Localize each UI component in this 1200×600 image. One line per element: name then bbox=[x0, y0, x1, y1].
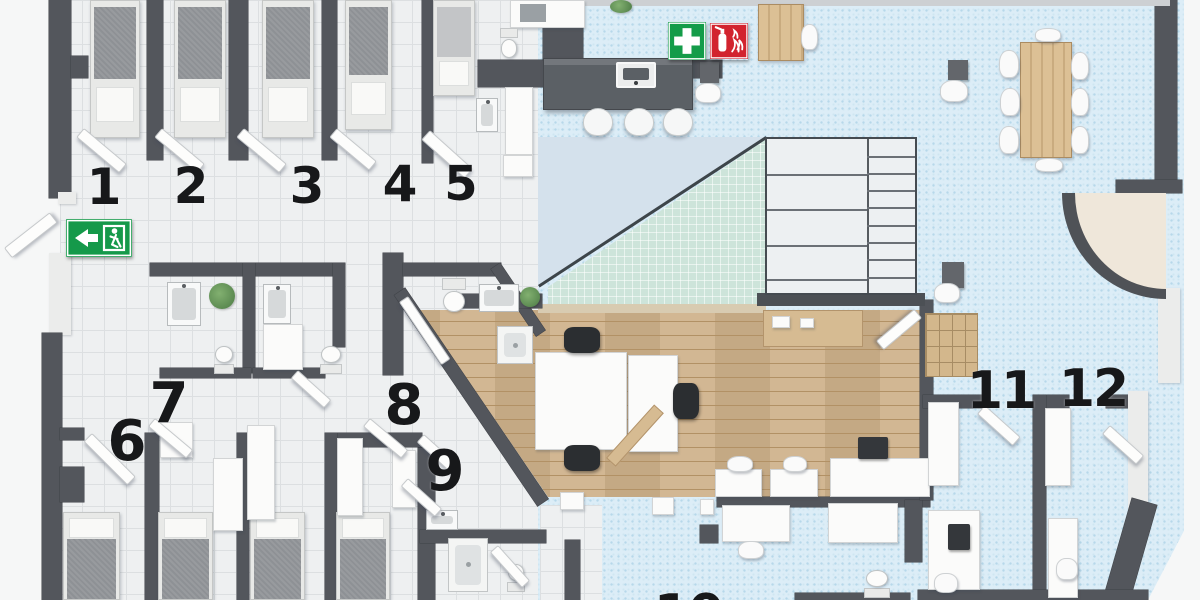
part bbox=[767, 245, 867, 247]
bed bbox=[174, 0, 226, 138]
bench bbox=[503, 155, 533, 177]
shower-tray bbox=[448, 538, 488, 592]
part bbox=[351, 82, 386, 115]
side-table bbox=[715, 469, 762, 497]
part bbox=[268, 87, 308, 122]
part bbox=[439, 61, 469, 86]
bottom-wall bbox=[795, 593, 910, 600]
dining-chair bbox=[1071, 52, 1089, 80]
room-number-label: 7 bbox=[150, 376, 187, 432]
bathroom-wall bbox=[333, 263, 345, 347]
chair bbox=[783, 456, 807, 472]
part bbox=[867, 242, 915, 244]
bar-stool bbox=[663, 108, 693, 136]
bed bbox=[433, 0, 475, 96]
door-jamb bbox=[560, 492, 584, 510]
dining-chair bbox=[999, 50, 1019, 78]
bed bbox=[90, 0, 140, 138]
bathroom-counter bbox=[505, 87, 533, 155]
part bbox=[486, 100, 490, 104]
bed bbox=[158, 512, 213, 600]
part bbox=[767, 174, 867, 176]
part bbox=[67, 539, 116, 599]
room-number-label: 9 bbox=[426, 444, 463, 500]
chair bbox=[738, 541, 764, 559]
part bbox=[266, 7, 310, 79]
part bbox=[867, 156, 915, 158]
chair bbox=[727, 456, 753, 472]
dining-chair bbox=[1071, 126, 1089, 154]
shower-tray bbox=[497, 326, 533, 364]
part bbox=[867, 173, 915, 175]
exterior-wall-left-bottom bbox=[42, 333, 62, 600]
office-chair bbox=[673, 383, 699, 419]
bathroom-wall bbox=[243, 263, 255, 373]
part bbox=[442, 278, 466, 290]
part bbox=[867, 277, 915, 279]
wall-stub bbox=[905, 500, 922, 562]
sideboard-item bbox=[800, 318, 814, 328]
wall-post bbox=[700, 525, 718, 543]
wardrobe bbox=[1045, 408, 1071, 486]
wood-threshold bbox=[538, 304, 766, 313]
part bbox=[215, 346, 233, 363]
part bbox=[172, 288, 196, 320]
dining-chair bbox=[1035, 28, 1061, 42]
desk bbox=[722, 505, 790, 542]
part bbox=[320, 364, 342, 374]
room-number-label: 10 bbox=[654, 588, 722, 600]
kitchen-wall bbox=[543, 26, 583, 60]
office-chair bbox=[564, 445, 600, 471]
part bbox=[500, 28, 518, 38]
part bbox=[342, 518, 384, 538]
door-jamb bbox=[700, 499, 714, 515]
part bbox=[69, 518, 114, 538]
computer-monitor bbox=[948, 524, 970, 550]
room-number-label: 2 bbox=[174, 161, 207, 211]
part bbox=[162, 539, 209, 599]
wardrobe bbox=[392, 450, 416, 508]
kitchen-island bbox=[543, 58, 693, 110]
part bbox=[268, 290, 286, 318]
room-number-label: 12 bbox=[1059, 363, 1127, 415]
wardrobe bbox=[213, 458, 243, 531]
part bbox=[867, 259, 915, 261]
corridor-wall bbox=[150, 263, 253, 276]
exterior-wall-left-top bbox=[49, 0, 71, 198]
fire-extinguisher-sign bbox=[710, 22, 748, 60]
bed bbox=[250, 512, 305, 600]
part bbox=[256, 518, 299, 538]
exit-door bbox=[4, 212, 58, 258]
chair bbox=[934, 283, 960, 303]
floor-plan: 123456789101112 bbox=[0, 0, 1200, 600]
toilet bbox=[212, 346, 236, 374]
office-desk bbox=[535, 352, 627, 450]
part bbox=[867, 139, 869, 293]
toilet bbox=[318, 346, 344, 374]
dining-chair bbox=[1035, 158, 1063, 172]
part bbox=[634, 81, 638, 85]
wood-staircase bbox=[592, 505, 672, 577]
part bbox=[441, 512, 445, 516]
bed bbox=[345, 0, 392, 130]
part bbox=[864, 588, 889, 598]
part bbox=[254, 539, 301, 599]
bathroom-counter bbox=[263, 324, 303, 370]
wall-nub bbox=[60, 467, 84, 502]
dining-chair bbox=[999, 126, 1019, 154]
room-number-label: 5 bbox=[444, 160, 475, 208]
dining-chair bbox=[1071, 88, 1089, 116]
bathroom-sink bbox=[167, 282, 201, 326]
part bbox=[866, 570, 889, 587]
curved-alcove-wall bbox=[1062, 193, 1166, 299]
part bbox=[321, 346, 341, 363]
top-wall-band bbox=[545, 0, 1170, 6]
corridor-wall bbox=[253, 263, 343, 276]
bathroom-sink bbox=[476, 98, 498, 132]
room-number-label: 11 bbox=[967, 365, 1035, 417]
plant bbox=[520, 287, 540, 307]
door-jamb bbox=[652, 497, 674, 515]
bedroom-wall bbox=[145, 433, 159, 600]
wall-light bbox=[1158, 288, 1180, 383]
bar-stool bbox=[583, 108, 613, 136]
bed bbox=[336, 512, 390, 600]
office-chair bbox=[564, 327, 600, 353]
part bbox=[180, 87, 220, 122]
kitchen-wall bbox=[478, 60, 544, 87]
reception-desk bbox=[830, 458, 930, 497]
chair bbox=[801, 24, 818, 50]
side-table bbox=[770, 469, 818, 497]
emergency-exit-running-man-sign bbox=[66, 219, 132, 257]
corridor-wall bbox=[403, 263, 501, 276]
wall-light bbox=[49, 253, 71, 335]
bathroom-sink bbox=[263, 284, 291, 324]
chair bbox=[695, 83, 721, 103]
part bbox=[164, 518, 207, 538]
shower-room-wall bbox=[565, 540, 580, 600]
chair bbox=[940, 80, 968, 102]
part bbox=[867, 190, 915, 192]
part bbox=[94, 7, 136, 79]
bar-stool bbox=[624, 108, 654, 136]
door-frame bbox=[58, 192, 76, 204]
room-number-label: 8 bbox=[385, 378, 422, 434]
main-staircase bbox=[765, 137, 917, 295]
part bbox=[437, 7, 471, 57]
room-number-label: 1 bbox=[87, 162, 120, 212]
bathroom-sink bbox=[479, 284, 519, 312]
part bbox=[96, 87, 134, 122]
cube-table bbox=[948, 60, 968, 80]
cube-table bbox=[700, 62, 719, 83]
part bbox=[867, 225, 915, 227]
plant bbox=[610, 0, 632, 13]
plant bbox=[209, 283, 235, 309]
dining-chair bbox=[1000, 88, 1020, 116]
room-number-label: 6 bbox=[108, 414, 145, 470]
part bbox=[1075, 193, 1166, 289]
cooktop bbox=[520, 4, 546, 22]
first-aid-cross-sign bbox=[668, 22, 706, 60]
part bbox=[214, 364, 234, 374]
chair bbox=[934, 573, 958, 593]
part bbox=[767, 279, 867, 281]
part bbox=[623, 68, 649, 80]
sideboard-item bbox=[772, 316, 790, 328]
part bbox=[867, 207, 915, 209]
toilet bbox=[862, 570, 892, 598]
bathroom-wall-thick bbox=[383, 253, 403, 375]
wall-nub bbox=[60, 428, 84, 440]
part bbox=[481, 104, 493, 126]
wall-nub bbox=[71, 56, 88, 78]
room-number-label: 4 bbox=[383, 159, 416, 209]
part bbox=[767, 209, 867, 211]
computer-monitor bbox=[858, 437, 888, 459]
part bbox=[501, 39, 518, 58]
chair bbox=[1056, 558, 1078, 580]
part bbox=[276, 286, 280, 290]
bed bbox=[63, 512, 120, 600]
part bbox=[340, 539, 386, 599]
part bbox=[349, 7, 388, 75]
wardrobe bbox=[247, 425, 275, 520]
wardrobe bbox=[928, 402, 959, 486]
toilet bbox=[498, 28, 520, 58]
part bbox=[484, 290, 514, 306]
part bbox=[431, 516, 453, 524]
wall-stub bbox=[1116, 180, 1182, 193]
bed bbox=[262, 0, 314, 138]
part bbox=[616, 62, 656, 88]
wardrobe bbox=[337, 438, 363, 516]
part bbox=[178, 7, 222, 79]
exterior-wall-right bbox=[1155, 0, 1177, 184]
toilet bbox=[440, 278, 468, 312]
dining-table bbox=[1020, 42, 1072, 158]
wood-table bbox=[758, 4, 804, 61]
room-number-label: 3 bbox=[290, 161, 323, 211]
cabinet bbox=[828, 503, 898, 543]
part bbox=[443, 291, 464, 312]
